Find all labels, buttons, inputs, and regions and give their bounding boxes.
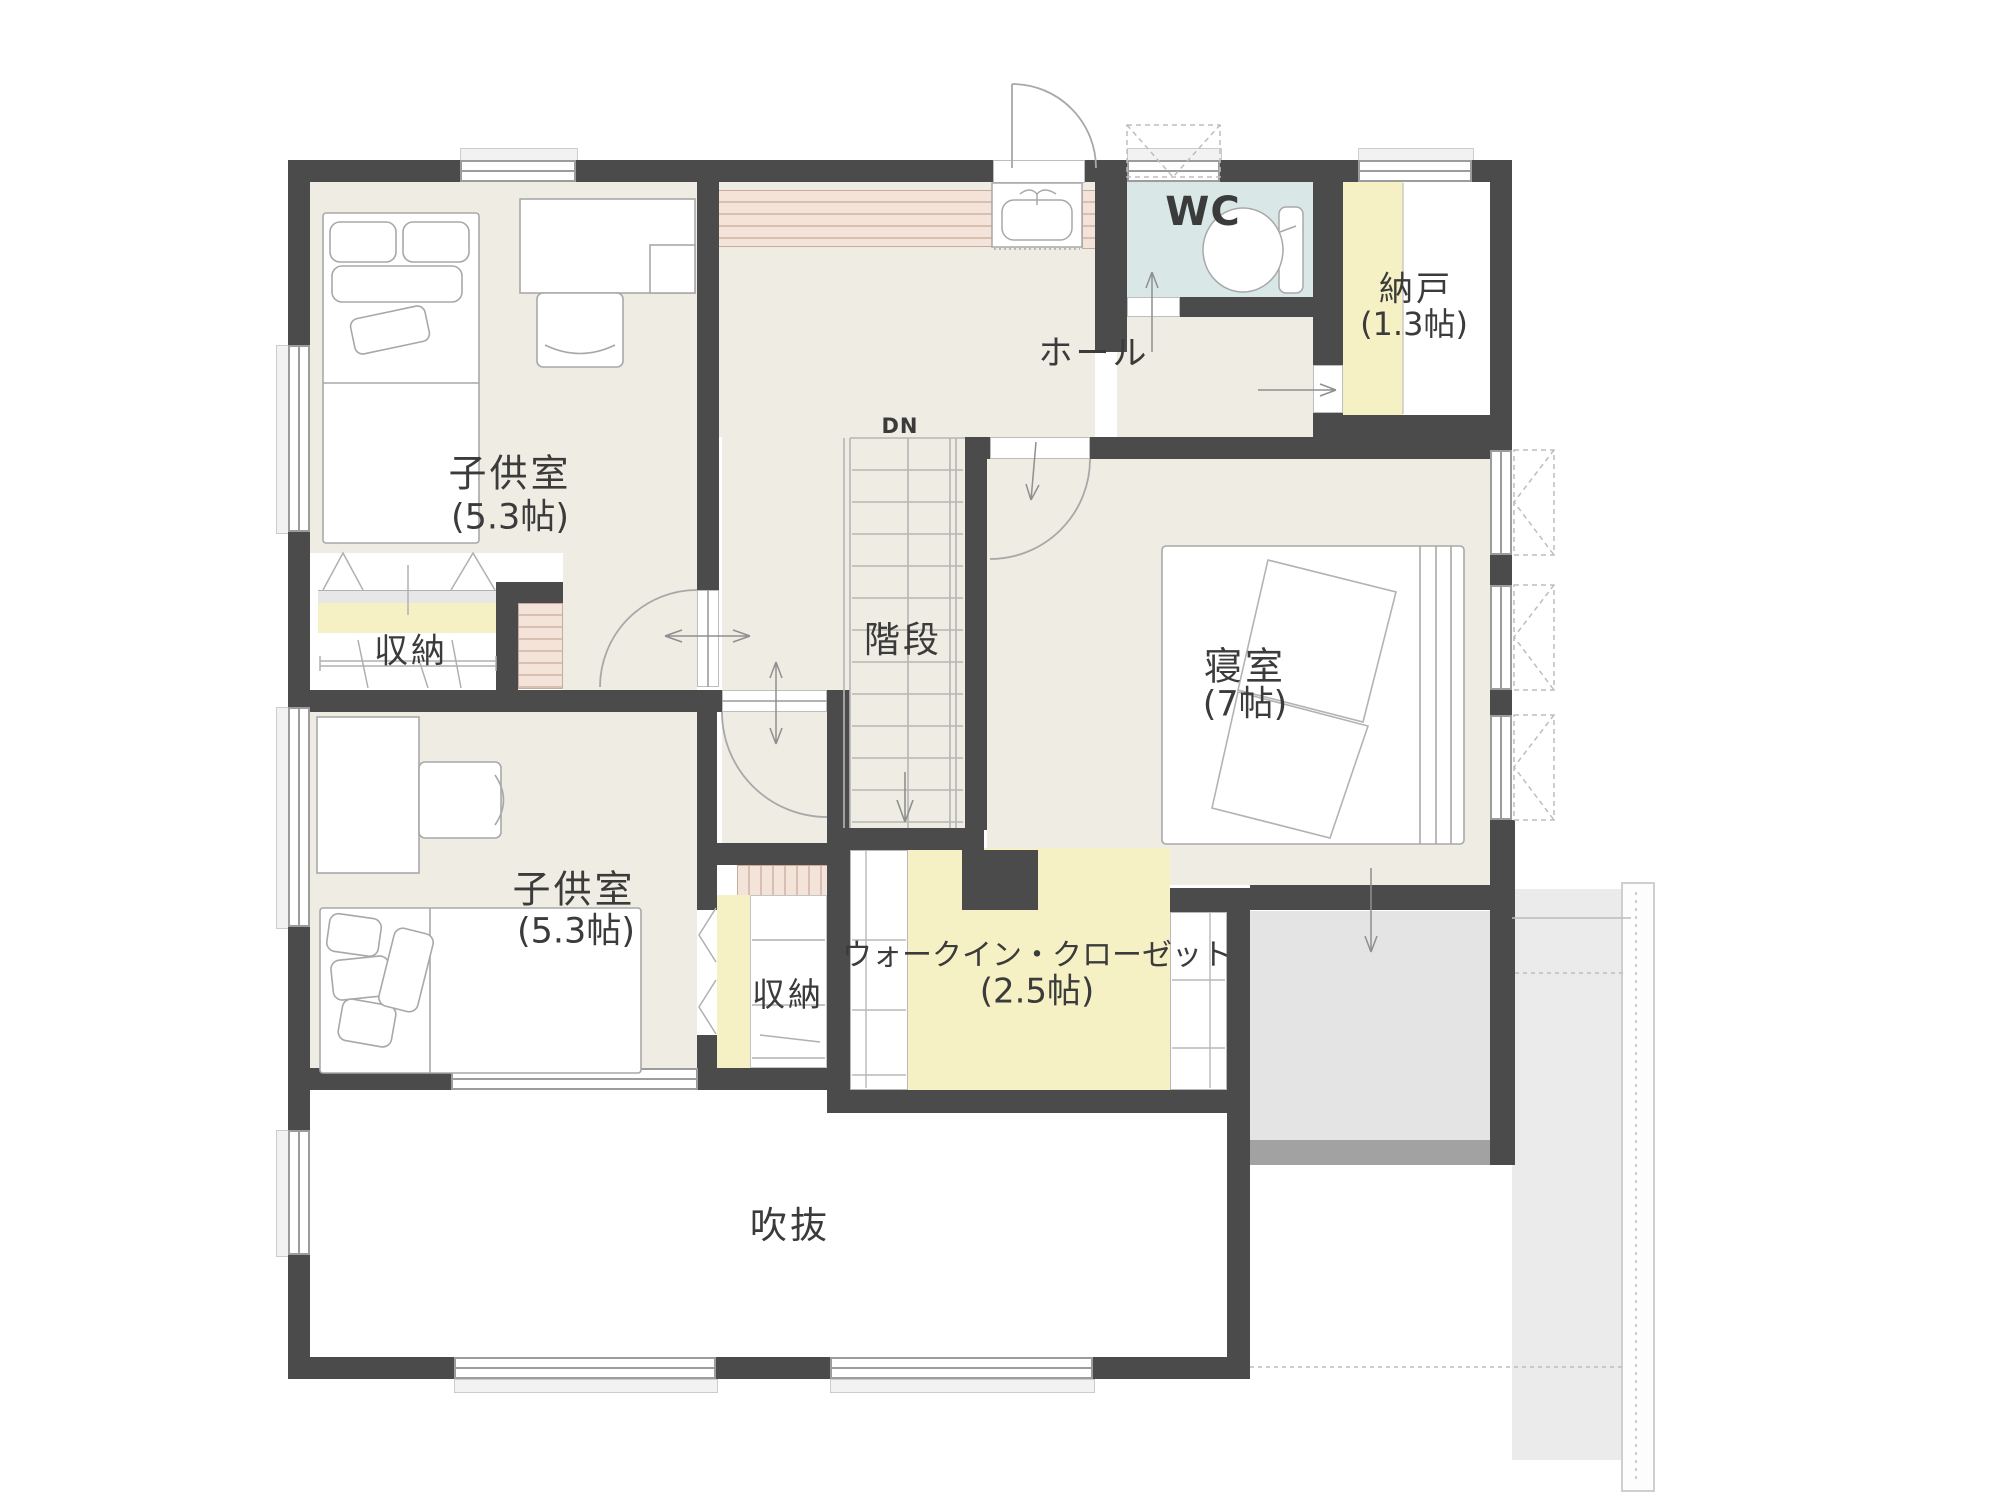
wall-right <box>1490 820 1515 1165</box>
floor-storage-2-yellow <box>717 895 750 1068</box>
interior-window-void <box>451 1068 698 1090</box>
wall-left <box>288 532 310 707</box>
wall-left <box>288 927 310 1130</box>
window <box>454 1357 716 1379</box>
wall-storage2-top <box>717 843 827 865</box>
window-sill <box>830 1379 1095 1393</box>
wall-wic-bottom <box>850 1090 1250 1113</box>
floor-kids-room-1-entry-nook <box>563 553 697 692</box>
window <box>830 1357 1093 1379</box>
room-size-nando: (1.3帖) <box>1360 299 1468 345</box>
lower-roof-left-block <box>1250 911 1490 1140</box>
wall-wc-bottom <box>1180 297 1313 317</box>
lower-roof-right-area <box>1512 889 1631 1460</box>
wall-nando-left-lower <box>1313 413 1343 459</box>
wall-right <box>1490 690 1512 715</box>
wall-wc-left <box>1095 160 1127 352</box>
wall-bottom <box>716 1357 830 1379</box>
wall-corridor-band <box>288 690 722 712</box>
wall-bedroom-top <box>965 437 990 459</box>
floor-plan-canvas: 子供室 (5.3帖) 収納 子供室 (5.3帖) 収納 DN 階段 ホール WC… <box>0 0 1999 1500</box>
floor-hall-corridor <box>722 437 850 690</box>
room-label-wc: WC <box>1165 189 1240 235</box>
room-label-storage-2: 収納 <box>752 968 824 1016</box>
wall-wic-top-right <box>1170 888 1250 912</box>
room-label-storage-1: 収納 <box>374 624 448 673</box>
wall-kids2-void <box>698 1068 850 1090</box>
window-bedroom <box>1490 715 1512 820</box>
wall-kids1-hall <box>697 182 719 590</box>
wall-top <box>288 160 460 182</box>
room-size-kids-room-2: (5.3帖) <box>517 903 635 954</box>
wall-stairs-wic-stub <box>962 850 1038 910</box>
door-top-exterior <box>1012 84 1096 168</box>
wall-kids2-void <box>288 1068 451 1090</box>
window-wc <box>1127 160 1220 182</box>
window <box>288 345 310 532</box>
hall-counter <box>715 190 994 247</box>
floor-kids-room-2 <box>310 712 697 1068</box>
room-label-void: 吹抜 <box>750 1195 830 1249</box>
wall-storage2-left-lower <box>697 1035 717 1068</box>
wall-top <box>576 160 993 182</box>
door-threshold-bedroom <box>990 437 1090 459</box>
floor-vestibule <box>722 712 827 843</box>
wall-bottom <box>288 1357 454 1379</box>
room-size-wic: (2.5帖) <box>980 964 1095 1013</box>
storage-2-shelf-top <box>737 865 829 897</box>
window-nando <box>1358 160 1472 182</box>
opening-nando <box>1313 365 1343 413</box>
window-bedroom <box>1490 450 1512 555</box>
wall-bedroom-bottom <box>1250 885 1493 910</box>
window <box>288 707 310 927</box>
window-sill <box>454 1379 718 1393</box>
window-bedroom <box>1490 585 1512 690</box>
wall-right <box>1490 555 1512 585</box>
room-label-stairs: 階段 <box>864 611 942 663</box>
stairs-dn-marker: DN <box>881 414 918 438</box>
window <box>460 160 576 182</box>
lower-roof-left-edge <box>1250 1140 1490 1165</box>
wall-stairs-right <box>965 437 987 830</box>
wall-storage2-left-upper <box>697 712 717 910</box>
window <box>288 1130 310 1255</box>
roof-gutter-bar <box>1621 882 1655 1492</box>
room-size-kids-room-1: (5.3帖) <box>451 489 569 540</box>
wall-vestibule-right <box>827 690 850 1113</box>
wall-bedroom-top <box>1090 437 1490 459</box>
wall-right <box>1490 160 1512 450</box>
room-label-hall: ホール <box>1039 326 1150 375</box>
door-leaf-kids1 <box>697 590 719 687</box>
wall-nando-bottom <box>1343 415 1490 437</box>
wall-storage1-stub <box>496 582 563 603</box>
room-size-bedroom: (7帖) <box>1203 676 1288 727</box>
door-threshold-vestibule <box>722 690 827 712</box>
wall-stairs-bottom <box>850 828 984 850</box>
opening-wc <box>1127 297 1180 317</box>
storage-1-step-ladder <box>518 603 563 689</box>
wall-wc-nando <box>1313 160 1343 365</box>
door-threshold-top-exterior <box>993 160 1085 183</box>
wall-left <box>288 160 310 345</box>
